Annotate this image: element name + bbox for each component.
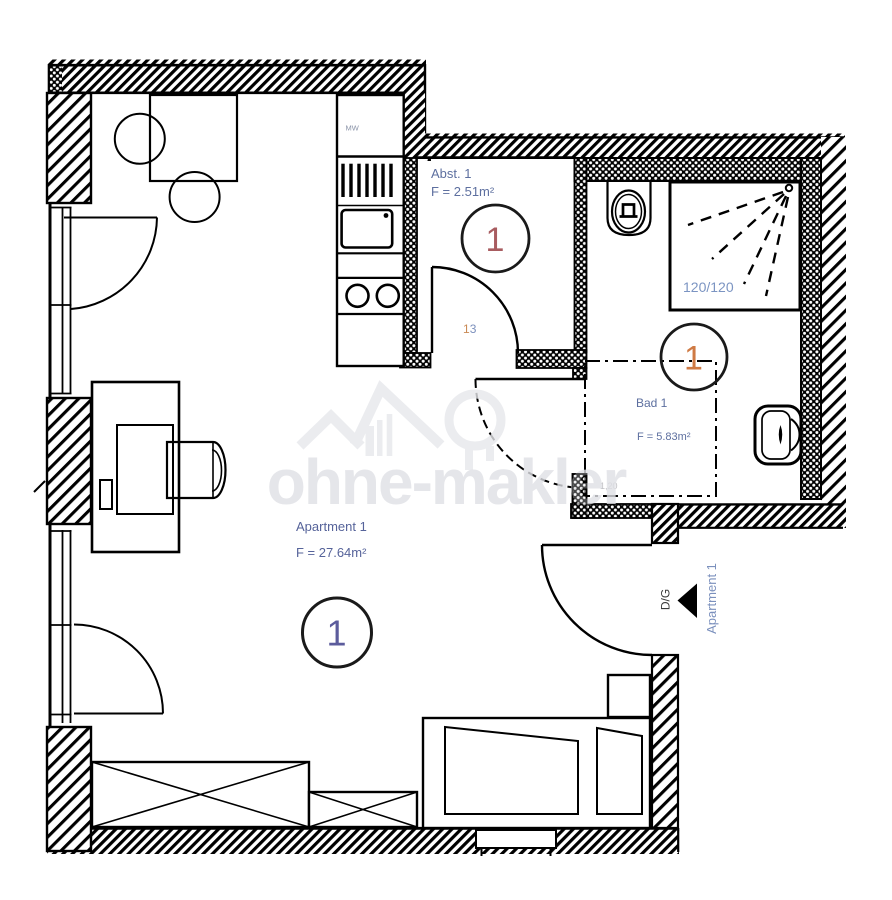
- svg-text:Abst. 1: Abst. 1: [431, 166, 471, 181]
- svg-text:Apartment 1: Apartment 1: [296, 519, 367, 534]
- svg-text:Bad 1: Bad 1: [636, 396, 668, 410]
- svg-text:Apartment 1: Apartment 1: [704, 563, 719, 634]
- svg-text:F = 27.64m²: F = 27.64m²: [296, 545, 367, 560]
- svg-text:1: 1: [684, 340, 703, 378]
- svg-text:F = 5.83m²: F = 5.83m²: [637, 431, 691, 443]
- svg-text:MW: MW: [346, 124, 360, 133]
- svg-text:1: 1: [486, 221, 505, 259]
- svg-text:13: 13: [463, 322, 477, 336]
- svg-text:1: 1: [326, 613, 346, 654]
- svg-text:D/G: D/G: [659, 589, 673, 610]
- svg-text:120/120: 120/120: [683, 279, 734, 295]
- svg-text:F = 2.51m²: F = 2.51m²: [431, 184, 495, 199]
